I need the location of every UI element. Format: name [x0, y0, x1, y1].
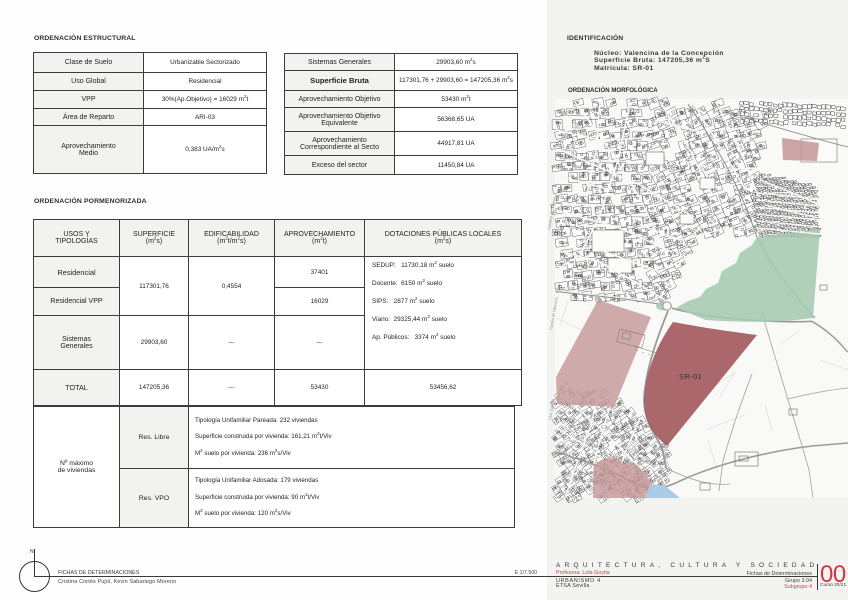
svg-text:SR-01: SR-01 — [679, 372, 702, 381]
svg-text:Ctra. Salteras: Ctra. Salteras — [548, 398, 556, 420]
